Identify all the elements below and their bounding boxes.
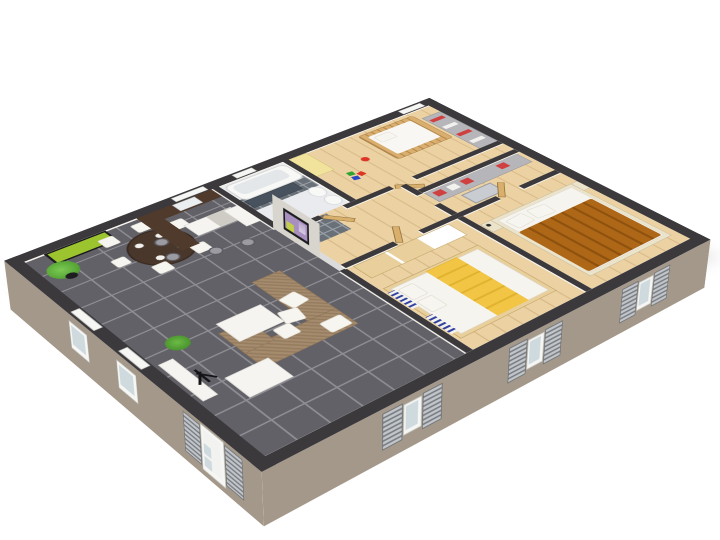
window-shutter [651, 264, 670, 306]
floor-plan-scene [0, 0, 720, 540]
door-glass-panes [203, 429, 222, 480]
window [403, 395, 422, 436]
window-glass [405, 400, 418, 430]
window-glass [529, 336, 541, 365]
window-shutter [619, 281, 639, 324]
floor-plan-render [22, 105, 690, 457]
window-shutter [507, 339, 527, 384]
window-shutter [382, 403, 403, 450]
window-shutter [422, 383, 443, 430]
window-glass [119, 365, 135, 396]
window-shutter [543, 320, 563, 364]
window-glass [71, 325, 86, 355]
window-glass [638, 279, 650, 306]
master-door [497, 182, 506, 197]
tv-screen [285, 211, 308, 241]
window [526, 331, 544, 370]
